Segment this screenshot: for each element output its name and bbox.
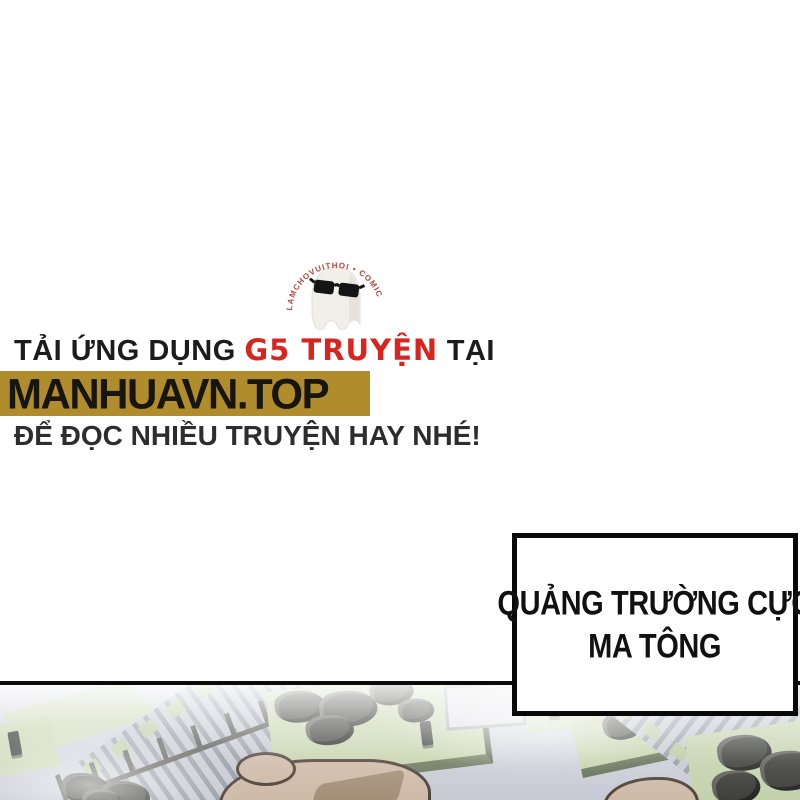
site-banner: MANHUAVN.TOP	[0, 371, 370, 416]
app-promo-line: TẢI ỨNG DỤNG G5 TRUYỆN TẠI	[14, 333, 774, 368]
promo-tagline: ĐỂ ĐỌC NHIỀU TRUYỆN HAY NHÉ!	[14, 420, 774, 452]
speech-bubble: QUẢNG TRƯỜNG CỰC MA TÔNG	[512, 533, 798, 716]
publisher-logo: LAMCHOVUITHOI • COMIC	[280, 240, 392, 340]
ghost-icon	[312, 267, 360, 330]
promo-suffix: TẠI	[438, 335, 495, 367]
app-name: G5 TRUYỆN	[244, 333, 438, 367]
speech-line-2: MA TÔNG	[589, 623, 722, 667]
speech-line-1: QUẢNG TRƯỜNG CỰC	[498, 581, 800, 625]
comic-page: LAMCHOVUITHOI • COMIC TẢI ỨNG DỤNG G5 TR…	[0, 0, 800, 800]
site-name: MANHUAVN.TOP	[7, 369, 328, 418]
promo-prefix: TẢI ỨNG DỤNG	[14, 335, 244, 367]
